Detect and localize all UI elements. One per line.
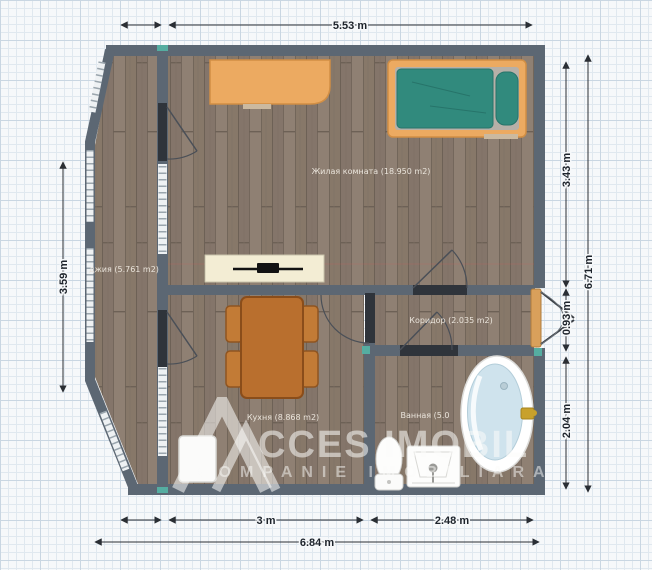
tv-stand bbox=[205, 255, 324, 282]
dining-table bbox=[241, 297, 303, 398]
wall-right-lower bbox=[534, 348, 545, 495]
dimension-right-living-label: 3.43 m bbox=[561, 153, 573, 187]
toilet bbox=[375, 437, 403, 490]
bed bbox=[388, 60, 526, 139]
floor-plan-canvas: Жилая комната (18.950 m2) джия (5.761 m2… bbox=[0, 0, 652, 570]
room-label-bathroom: Ванная (5.0 bbox=[401, 411, 450, 420]
desk-drawer bbox=[243, 104, 271, 109]
wall-kitchen-divider bbox=[364, 343, 375, 484]
dimension-right-bath-label: 2.04 m bbox=[561, 404, 573, 438]
dimension-top-label: 5.53 m bbox=[333, 20, 367, 32]
dimension-right-total-label: 6.71 m bbox=[583, 255, 595, 289]
wall-top bbox=[106, 45, 545, 56]
dimension-left-label: 3.59 m bbox=[58, 260, 70, 294]
door-leaf-kitchen-corridor bbox=[365, 293, 375, 343]
window-divider-upper bbox=[158, 164, 167, 254]
wall-bottom bbox=[128, 484, 545, 495]
room-label-kitchen: Кухня (8.868 m2) bbox=[247, 413, 319, 422]
floor-plan-drawing: Жилая комната (18.950 m2) джия (5.761 m2… bbox=[0, 0, 652, 570]
dimension-bottom-kitchen-label: 3 m bbox=[257, 515, 276, 527]
washbasin-drain bbox=[429, 464, 438, 473]
entrance-door bbox=[531, 289, 541, 347]
door-opening-living-corridor bbox=[413, 285, 467, 295]
bed-pillow bbox=[496, 72, 518, 125]
dimension-bottom-bath-label: 2.48 m bbox=[435, 515, 469, 527]
room-label-corridor: Коридор (2.035 m2) bbox=[409, 316, 492, 325]
bathtub-drain bbox=[501, 383, 508, 390]
wall-living-divider bbox=[157, 285, 535, 295]
room-label-balcony: джия (5.761 m2) bbox=[89, 265, 159, 274]
room-label-living: Жилая комната (18.950 m2) bbox=[312, 167, 431, 176]
wall-right-upper bbox=[534, 45, 545, 288]
desk bbox=[210, 60, 330, 104]
dimension-right-entry-label: 0.93 m bbox=[561, 301, 573, 335]
door-opening-corridor-bathroom bbox=[400, 345, 458, 356]
kitchen-sink-unit bbox=[179, 436, 216, 482]
dimension-bottom-total-label: 6.84 m bbox=[300, 537, 334, 549]
bed-mattress bbox=[397, 69, 493, 128]
door-opening-balcony-kitchen bbox=[158, 310, 167, 367]
window-divider-lower bbox=[158, 366, 167, 456]
washbasin bbox=[407, 446, 460, 487]
door-opening-balcony-living bbox=[158, 103, 167, 161]
